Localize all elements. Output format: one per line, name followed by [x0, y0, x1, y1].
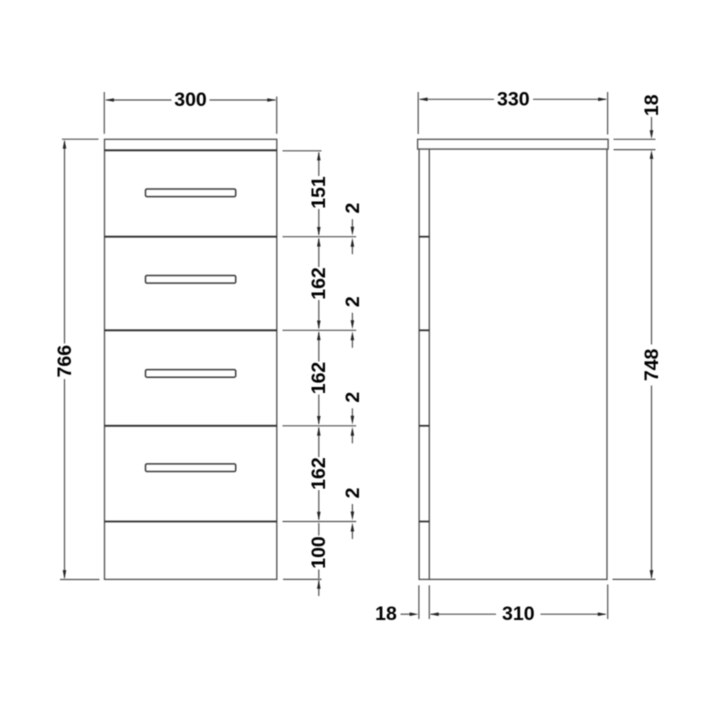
svg-text:2: 2	[342, 296, 364, 307]
svg-text:2: 2	[342, 392, 364, 403]
svg-text:330: 330	[497, 88, 530, 110]
svg-text:766: 766	[54, 345, 76, 378]
svg-text:18: 18	[641, 94, 663, 116]
svg-text:162: 162	[308, 267, 330, 300]
svg-text:18: 18	[375, 603, 397, 625]
svg-text:162: 162	[308, 457, 330, 490]
svg-text:748: 748	[641, 348, 663, 381]
svg-text:310: 310	[502, 603, 535, 625]
svg-text:2: 2	[342, 487, 364, 498]
svg-text:2: 2	[342, 203, 364, 214]
svg-text:100: 100	[308, 536, 330, 569]
svg-text:300: 300	[174, 89, 207, 111]
svg-text:162: 162	[308, 362, 330, 395]
svg-text:151: 151	[308, 176, 330, 209]
